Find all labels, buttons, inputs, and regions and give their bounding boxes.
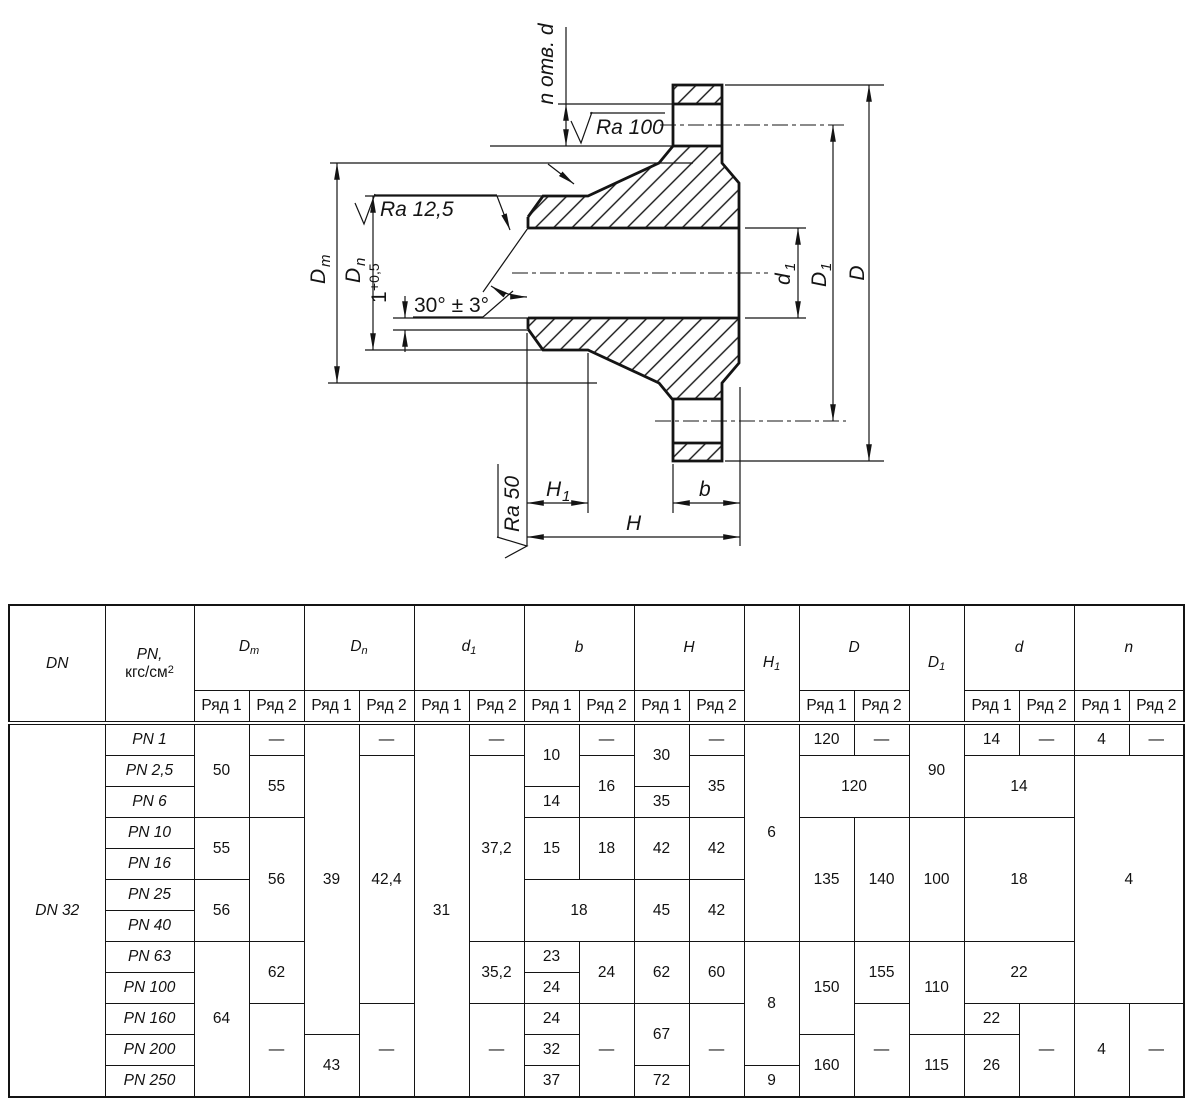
body-cell: 45	[634, 880, 689, 942]
body-cell: 4	[1074, 756, 1184, 1004]
body-cell: 31	[414, 723, 469, 1097]
body-cell: —	[854, 723, 909, 756]
body-row: PN 2,55542,437,21635120144	[9, 756, 1184, 787]
flange-drawing: n отв. d Ra 100 Ra 12,5 Ra 50 30° ± 3° 1…	[0, 0, 1189, 580]
d1-label: d 1	[772, 263, 799, 285]
header-cell: Ряд 2	[469, 691, 524, 724]
body-cell: 62	[634, 942, 689, 1004]
body-cell: 42,4	[359, 756, 414, 1004]
body-cell: 9	[744, 1066, 799, 1098]
body-cell: 140	[854, 818, 909, 942]
body-cell: 42	[634, 818, 689, 880]
body-cell: 4	[1074, 1004, 1129, 1098]
body-cell: —	[1129, 1004, 1184, 1098]
header-cell: Ряд 1	[304, 691, 359, 724]
Dm-label: D m	[307, 255, 334, 285]
body-cell: 55	[249, 756, 304, 818]
Dn-label: D n	[342, 258, 369, 283]
pn-label: PN 100	[105, 973, 194, 1004]
header-cell: Ряд 2	[1129, 691, 1184, 724]
header-cell: Ряд 1	[194, 691, 249, 724]
body-cell: 24	[524, 973, 579, 1004]
body-cell: 23	[524, 942, 579, 973]
header-cell: Ряд 2	[579, 691, 634, 724]
body-cell: 67	[634, 1004, 689, 1066]
body-cell: 22	[964, 942, 1074, 1004]
body-cell: —	[1019, 1004, 1074, 1098]
body-cell: —	[249, 723, 304, 756]
body-cell: 35	[634, 787, 689, 818]
header-cell: Ряд 2	[1019, 691, 1074, 724]
body-cell: 90	[909, 723, 964, 818]
body-row: PN 63646235,223246260815015511022	[9, 942, 1184, 973]
body-row: PN 1055561518424213514010018	[9, 818, 1184, 849]
body-cell: 18	[524, 880, 634, 942]
body-cell: —	[359, 723, 414, 756]
header-cell: Ряд 1	[414, 691, 469, 724]
table-header: DNPN,кгс/см2DmDnd1bHH1DD1dnРяд 1Ряд 2Ряд…	[9, 605, 1184, 723]
svg-text:D: D	[846, 265, 869, 280]
header-cell: Ряд 2	[249, 691, 304, 724]
body-cell: 35	[689, 756, 744, 818]
body-cell: 14	[524, 787, 579, 818]
pn-label: PN 25	[105, 880, 194, 911]
header-row: DNPN,кгс/см2DmDnd1bHH1DD1dn	[9, 605, 1184, 691]
svg-text:D: D	[307, 269, 330, 284]
body-cell: 120	[799, 723, 854, 756]
body-cell: 14	[964, 723, 1019, 756]
body-cell: —	[1129, 723, 1184, 756]
pn-label: PN 250	[105, 1066, 194, 1098]
body-row: PN 160———24—67——22—4—	[9, 1004, 1184, 1035]
header-cell: Dn	[304, 605, 414, 691]
body-cell: 18	[579, 818, 634, 880]
pn-label: PN 10	[105, 818, 194, 849]
header-cell: H	[634, 605, 744, 691]
land-dim-label: 1 +0,5	[366, 263, 391, 303]
body-cell: 55	[194, 818, 249, 880]
header-cell: Dm	[194, 605, 304, 691]
body-cell: 14	[964, 756, 1074, 818]
svg-text:+0,5: +0,5	[366, 263, 382, 291]
pn-label: PN 200	[105, 1035, 194, 1066]
pn-label: PN 2,5	[105, 756, 194, 787]
body-cell: 43	[304, 1035, 359, 1098]
svg-text:D: D	[808, 272, 831, 287]
pn-label: PN 6	[105, 787, 194, 818]
pn-label: PN 160	[105, 1004, 194, 1035]
header-cell: H1	[744, 605, 799, 723]
svg-text:1: 1	[782, 263, 799, 271]
body-cell: 50	[194, 723, 249, 818]
svg-text:Ra 50: Ra 50	[501, 476, 524, 532]
D1-label: D 1	[808, 263, 835, 287]
body-cell: 30	[634, 723, 689, 787]
body-cell: —	[689, 1004, 744, 1098]
svg-text:d: d	[772, 272, 795, 285]
body-cell: 35,2	[469, 942, 524, 1004]
dim-d1	[745, 228, 806, 318]
header-cell: D1	[909, 605, 964, 723]
header-cell: Ряд 1	[634, 691, 689, 724]
body-cell: 160	[799, 1035, 854, 1098]
body-cell: 32	[524, 1035, 579, 1066]
svg-text:n: n	[352, 258, 369, 266]
pn-label: PN 63	[105, 942, 194, 973]
header-cell: Ряд 1	[964, 691, 1019, 724]
body-cell: —	[854, 1004, 909, 1098]
header-cell: Ряд 2	[359, 691, 414, 724]
pn-label: PN 40	[105, 911, 194, 942]
header-cell: Ряд 1	[1074, 691, 1129, 724]
body-cell: 155	[854, 942, 909, 1004]
svg-text:m: m	[317, 255, 334, 268]
bevel-angle-label: 30° ± 3°	[414, 294, 489, 317]
body-cell: 37,2	[469, 756, 524, 942]
body-cell: 37	[524, 1066, 579, 1098]
header-cell: n	[1074, 605, 1184, 691]
svg-text:1: 1	[368, 291, 391, 303]
body-cell: —	[579, 1004, 634, 1098]
page: { "drawing": { "labels": { "holes": "n о…	[0, 0, 1189, 1118]
body-cell: 56	[249, 818, 304, 942]
body-cell: 56	[194, 880, 249, 942]
body-cell: 4	[1074, 723, 1129, 756]
body-cell: 24	[524, 1004, 579, 1035]
flange-dimensions-table: DNPN,кгс/см2DmDnd1bHH1DD1dnРяд 1Ряд 2Ряд…	[8, 604, 1185, 1098]
svg-text:D: D	[342, 268, 365, 283]
body-row: DN 32PN 150—39—31—10—30—6120—9014—4—	[9, 723, 1184, 756]
holes-count-label: n отв. d	[535, 22, 558, 104]
body-cell: 64	[194, 942, 249, 1098]
body-cell: 42	[689, 818, 744, 880]
body-cell: —	[249, 1004, 304, 1098]
header-cell: Ряд 2	[854, 691, 909, 724]
body-cell: 6	[744, 723, 799, 942]
header-cell: d1	[414, 605, 524, 691]
ra50-label: Ra 50	[501, 476, 524, 532]
body-cell: 8	[744, 942, 799, 1066]
body-cell: 22	[964, 1004, 1019, 1035]
body-cell: —	[689, 723, 744, 756]
pn-label: PN 16	[105, 849, 194, 880]
table-body: DN 32PN 150—39—31—10—30—6120—9014—4—PN 2…	[9, 723, 1184, 1097]
body-cell: 16	[579, 756, 634, 818]
body-cell: 39	[304, 723, 359, 1035]
body-cell: 15	[524, 818, 579, 880]
header-cell: d	[964, 605, 1074, 691]
body-cell: 26	[964, 1035, 1019, 1098]
header-cell: PN,кгс/см2	[105, 605, 194, 723]
header-cell: D	[799, 605, 909, 691]
body-cell: —	[359, 1004, 414, 1098]
body-cell: 60	[689, 942, 744, 1004]
svg-text:1: 1	[562, 488, 570, 505]
header-cell: DN	[9, 605, 105, 723]
svg-text:1: 1	[818, 263, 835, 271]
b-label: b	[699, 478, 711, 501]
body-cell: —	[469, 1004, 524, 1098]
body-cell: 100	[909, 818, 964, 942]
header-cell: b	[524, 605, 634, 691]
body-cell: —	[1019, 723, 1074, 756]
ra125-label: Ra 12,5	[380, 198, 454, 221]
svg-text:H: H	[546, 478, 562, 501]
H1-label: H 1	[546, 478, 570, 505]
H-label: H	[626, 512, 642, 535]
body-cell: 120	[799, 756, 909, 818]
body-cell: 10	[524, 723, 579, 787]
body-cell: 42	[689, 880, 744, 942]
dn-label: DN 32	[9, 723, 105, 1097]
pn-label: PN 1	[105, 723, 194, 756]
body-cell: 72	[634, 1066, 689, 1098]
header-cell: Ряд 1	[524, 691, 579, 724]
body-cell: 135	[799, 818, 854, 942]
header-cell: Ряд 1	[799, 691, 854, 724]
svg-text:n отв. d: n отв. d	[535, 22, 558, 104]
body-cell: 110	[909, 942, 964, 1035]
body-cell: 18	[964, 818, 1074, 942]
ra100-label: Ra 100	[596, 116, 664, 139]
body-cell: —	[469, 723, 524, 756]
body-cell: 115	[909, 1035, 964, 1098]
D-label: D	[846, 265, 869, 280]
body-cell: —	[579, 723, 634, 756]
body-cell: 24	[579, 942, 634, 1004]
header-cell: Ряд 2	[689, 691, 744, 724]
body-cell: 150	[799, 942, 854, 1035]
body-cell: 62	[249, 942, 304, 1004]
